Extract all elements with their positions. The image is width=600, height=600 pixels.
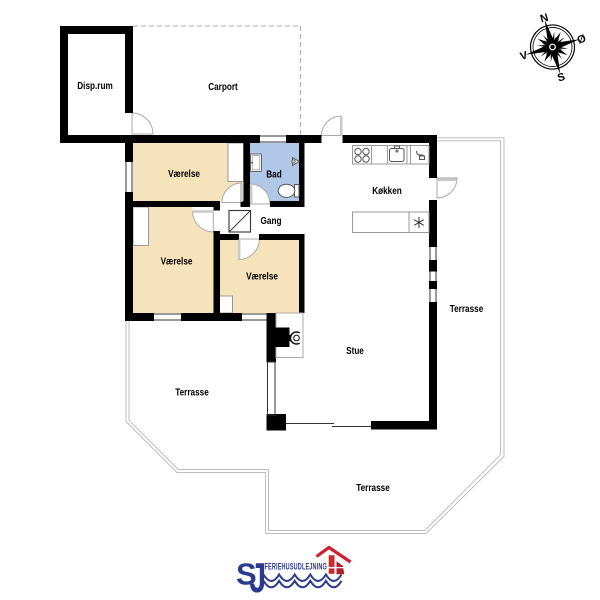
svg-text:Terrasse: Terrasse [450,303,484,314]
svg-text:Køkken: Køkken [372,185,402,196]
svg-text:J: J [250,554,267,600]
svg-text:Bad: Bad [266,169,281,180]
svg-text:FERIEHUSUDLEJNING: FERIEHUSUDLEJNING [265,561,327,572]
svg-text:Carport: Carport [208,81,238,92]
svg-text:Værelse: Værelse [161,256,193,267]
svg-text:Stue: Stue [346,345,364,356]
svg-text:Gang: Gang [261,215,282,226]
svg-text:Værelse: Værelse [168,168,200,179]
svg-text:Disp.rum: Disp.rum [77,80,112,91]
svg-text:Terrasse: Terrasse [175,387,209,398]
svg-text:Terrasse: Terrasse [356,482,390,493]
svg-text:Værelse: Værelse [246,271,278,282]
